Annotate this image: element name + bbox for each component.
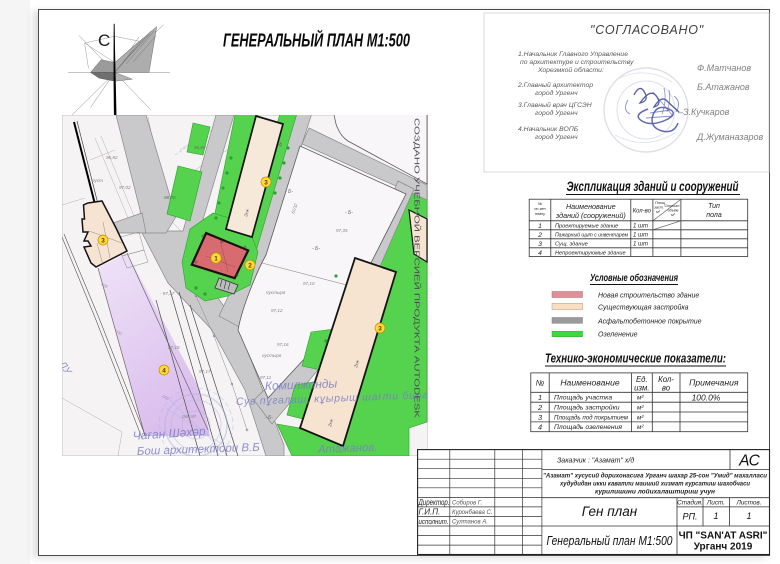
svg-text:97,10: 97,10 xyxy=(303,281,315,286)
svg-text:РП.: РП. xyxy=(682,512,697,522)
svg-text:96,92: 96,92 xyxy=(106,155,118,160)
svg-text:1.Начальник Главного Управлени: 1.Начальник Главного Управление xyxy=(518,51,628,58)
svg-text:объём: объём xyxy=(668,209,679,213)
svg-text:Условные обозначения: Условные обозначения xyxy=(590,272,678,284)
svg-text:изм.: изм. xyxy=(634,384,649,393)
svg-text:1: 1 xyxy=(214,256,218,263)
svg-text:Ф.Матчанов: Ф.Матчанов xyxy=(697,63,751,73)
svg-text:4.Начальник ВОПБ: 4.Начальник ВОПБ xyxy=(518,126,579,133)
svg-text:Генеральный план М1:500: Генеральный план М1:500 xyxy=(547,534,673,548)
svg-text:Лист.: Лист. xyxy=(706,500,725,507)
svg-text:Наименование: Наименование xyxy=(560,378,620,388)
svg-text:пола: пола xyxy=(706,212,722,219)
svg-text:Непроектируюмые здание: Непроектируюмые здание xyxy=(555,250,626,256)
svg-text:96,80: 96,80 xyxy=(194,145,206,150)
svg-text:–З.Кучкаров: –З.Кучкаров xyxy=(677,107,730,117)
svg-text:Технико-экономические показате: Технико-экономические показатели: xyxy=(545,352,726,366)
svg-text:Строит: Строит xyxy=(665,204,680,208)
svg-text:2.Главный архитектор: 2.Главный архитектор xyxy=(517,81,593,89)
svg-text:Пажарный щит с инвентарем: Пажарный щит с инвентарем xyxy=(555,231,628,238)
svg-text:- Б-: - Б- xyxy=(345,210,353,216)
svg-text:2: 2 xyxy=(537,403,542,412)
svg-text:Стадия.: Стадия. xyxy=(677,499,703,507)
svg-text:Ген план: Ген план xyxy=(582,504,638,519)
svg-text:худудидан икки каватли маиший: худудидан икки каватли маиший хизмат кур… xyxy=(559,480,750,488)
svg-text:3: 3 xyxy=(378,326,382,333)
svg-text:Заказчик : "Азамат" х/д: Заказчик : "Азамат" х/д xyxy=(557,457,634,465)
svg-text:Г.И.П.: Г.И.П. xyxy=(419,508,441,517)
svg-text:м²: м² xyxy=(637,424,644,431)
svg-text:- Б-: - Б- xyxy=(312,246,320,252)
svg-text:Площадь участка: Площадь участка xyxy=(554,394,612,402)
svg-text:заст.: заст. xyxy=(653,206,664,210)
svg-text:по архитектуре и строительству: по архитектуре и строительству xyxy=(520,59,634,66)
svg-text:Тип: Тип xyxy=(708,203,720,210)
svg-text:C: C xyxy=(98,31,110,50)
svg-text:м³: м³ xyxy=(671,213,676,217)
svg-text:город Ургенч: город Ургенч xyxy=(535,89,578,97)
svg-text:город Ургенч: город Ургенч xyxy=(535,109,578,117)
svg-text:Площадь застройки: Площадь застройки xyxy=(554,404,620,412)
svg-text:Атажанов.: Атажанов. xyxy=(317,442,378,456)
svg-text:- Б-: - Б- xyxy=(285,189,293,195)
svg-text:зданий (сооружений): зданий (сооружений) xyxy=(555,211,626,220)
svg-text:Хорезмкой области:: Хорезмкой области: xyxy=(537,66,604,74)
svg-text:Площадь озеленения: Площадь озеленения xyxy=(554,423,622,431)
svg-text:4: 4 xyxy=(538,423,542,432)
svg-text:100.0%: 100.0% xyxy=(692,392,721,402)
svg-text:- Б-: - Б- xyxy=(265,415,273,421)
svg-text:2: 2 xyxy=(248,263,252,270)
svg-text:Султанов А.: Султанов А. xyxy=(452,520,488,526)
svg-text:1: 1 xyxy=(538,223,542,230)
svg-text:м²: м² xyxy=(656,210,661,214)
svg-text:во: во xyxy=(662,384,671,393)
svg-text:Сущ. здание: Сущ. здание xyxy=(555,241,588,247)
svg-text:пуст: пуст xyxy=(92,178,103,183)
svg-text:Комилжонды: Комилжонды xyxy=(265,376,338,393)
svg-text:Существующая застройка: Существующая застройка xyxy=(598,303,689,311)
svg-text:1: 1 xyxy=(746,511,751,521)
svg-text:м²: м² xyxy=(637,405,644,412)
svg-text:97,12: 97,12 xyxy=(271,308,283,313)
svg-text:4: 4 xyxy=(538,250,542,257)
svg-text:пустыря: пустыря xyxy=(262,353,282,358)
svg-text:СОЗДАНО УЧЕБНОЙ ВЕРСИЕЙ ПРОДУК: СОЗДАНО УЧЕБНОЙ ВЕРСИЕЙ ПРОДУКТА AUTODES… xyxy=(413,118,422,418)
svg-text:2: 2 xyxy=(537,232,542,239)
svg-text:Б.Атажанов: Б.Атажанов xyxy=(697,82,750,92)
svg-text:1 шт: 1 шт xyxy=(633,233,648,239)
svg-text:Проектируемые здание: Проектируемые здание xyxy=(555,223,618,229)
svg-text:3: 3 xyxy=(538,413,543,422)
svg-text:№: № xyxy=(538,202,542,206)
svg-text:город Ургенч: город Ургенч xyxy=(535,133,578,141)
svg-text:м²: м² xyxy=(637,414,644,421)
svg-text:98,78: 98,78 xyxy=(164,195,176,200)
svg-text:97,35: 97,35 xyxy=(336,228,348,233)
svg-text:97,17: 97,17 xyxy=(199,369,211,374)
svg-text:3: 3 xyxy=(264,180,268,187)
svg-text:Экспликация зданий и сооружени: Экспликация зданий и сооружений xyxy=(567,179,740,194)
svg-text:по ген: по ген xyxy=(534,207,546,211)
svg-text:Д.Жуманазаров: Д.Жуманазаров xyxy=(696,132,764,142)
svg-text:"СОГЛАСОВАНО": "СОГЛАСОВАНО" xyxy=(590,23,704,37)
svg-text:Площадь под покрытием: Площадь под покрытием xyxy=(554,413,628,421)
svg-text:курилишини лойихалаштириш учун: курилишини лойихалаштириш учун xyxy=(595,488,715,496)
svg-text:исполнит.: исполнит. xyxy=(419,517,449,526)
svg-text:3: 3 xyxy=(538,241,542,248)
svg-text:Собиров Г.: Собиров Г. xyxy=(452,501,482,507)
svg-text:пустыря: пустыря xyxy=(266,290,286,295)
svg-text:Новая строительство здание: Новая строительство здание xyxy=(598,291,699,299)
svg-text:Озеленение: Озеленение xyxy=(598,332,638,339)
svg-text:Асфальтобетонное покрытие: Асфальтобетонное покрытие xyxy=(597,317,702,325)
svg-text:3.Главный врач ЦГСЭН: 3.Главный врач ЦГСЭН xyxy=(518,101,592,109)
svg-text:1 шт: 1 шт xyxy=(633,224,648,230)
svg-text:97,02: 97,02 xyxy=(119,185,131,190)
svg-text:Куронбаева С.: Куронбаева С. xyxy=(452,510,493,516)
svg-text:Директор.: Директор. xyxy=(418,498,450,507)
svg-text:ЧП "SAN'AT ASRI": ЧП "SAN'AT ASRI" xyxy=(679,531,768,542)
svg-text:97,16: 97,16 xyxy=(277,342,289,347)
svg-text:Урганч 2019: Урганч 2019 xyxy=(694,542,753,553)
svg-text:3: 3 xyxy=(101,238,105,245)
svg-text:Наименование: Наименование xyxy=(566,202,616,211)
svg-text:плану: плану xyxy=(535,212,546,216)
svg-text:Кол-во: Кол-во xyxy=(633,209,652,215)
svg-text:м²: м² xyxy=(637,395,644,402)
svg-text:4: 4 xyxy=(162,368,166,375)
svg-text:Листов.: Листов. xyxy=(735,500,761,507)
svg-text:97,18: 97,18 xyxy=(168,345,180,350)
svg-text:Примечания: Примечания xyxy=(689,378,739,388)
svg-text:АС: АС xyxy=(738,453,760,470)
svg-text:1: 1 xyxy=(538,393,542,402)
svg-text:ГЕНЕРАЛЬНЫЙ ПЛАН М1:500: ГЕНЕРАЛЬНЫЙ ПЛАН М1:500 xyxy=(223,30,410,51)
svg-text:1 шт: 1 шт xyxy=(633,242,648,248)
svg-text:"Азамат" хусусий дорихонасига: "Азамат" хусусий дорихонасига Урганч шах… xyxy=(543,472,767,480)
svg-text:1: 1 xyxy=(713,511,718,521)
svg-text:- 97,17: - 97,17 xyxy=(160,291,175,296)
svg-text:№: № xyxy=(536,379,545,388)
